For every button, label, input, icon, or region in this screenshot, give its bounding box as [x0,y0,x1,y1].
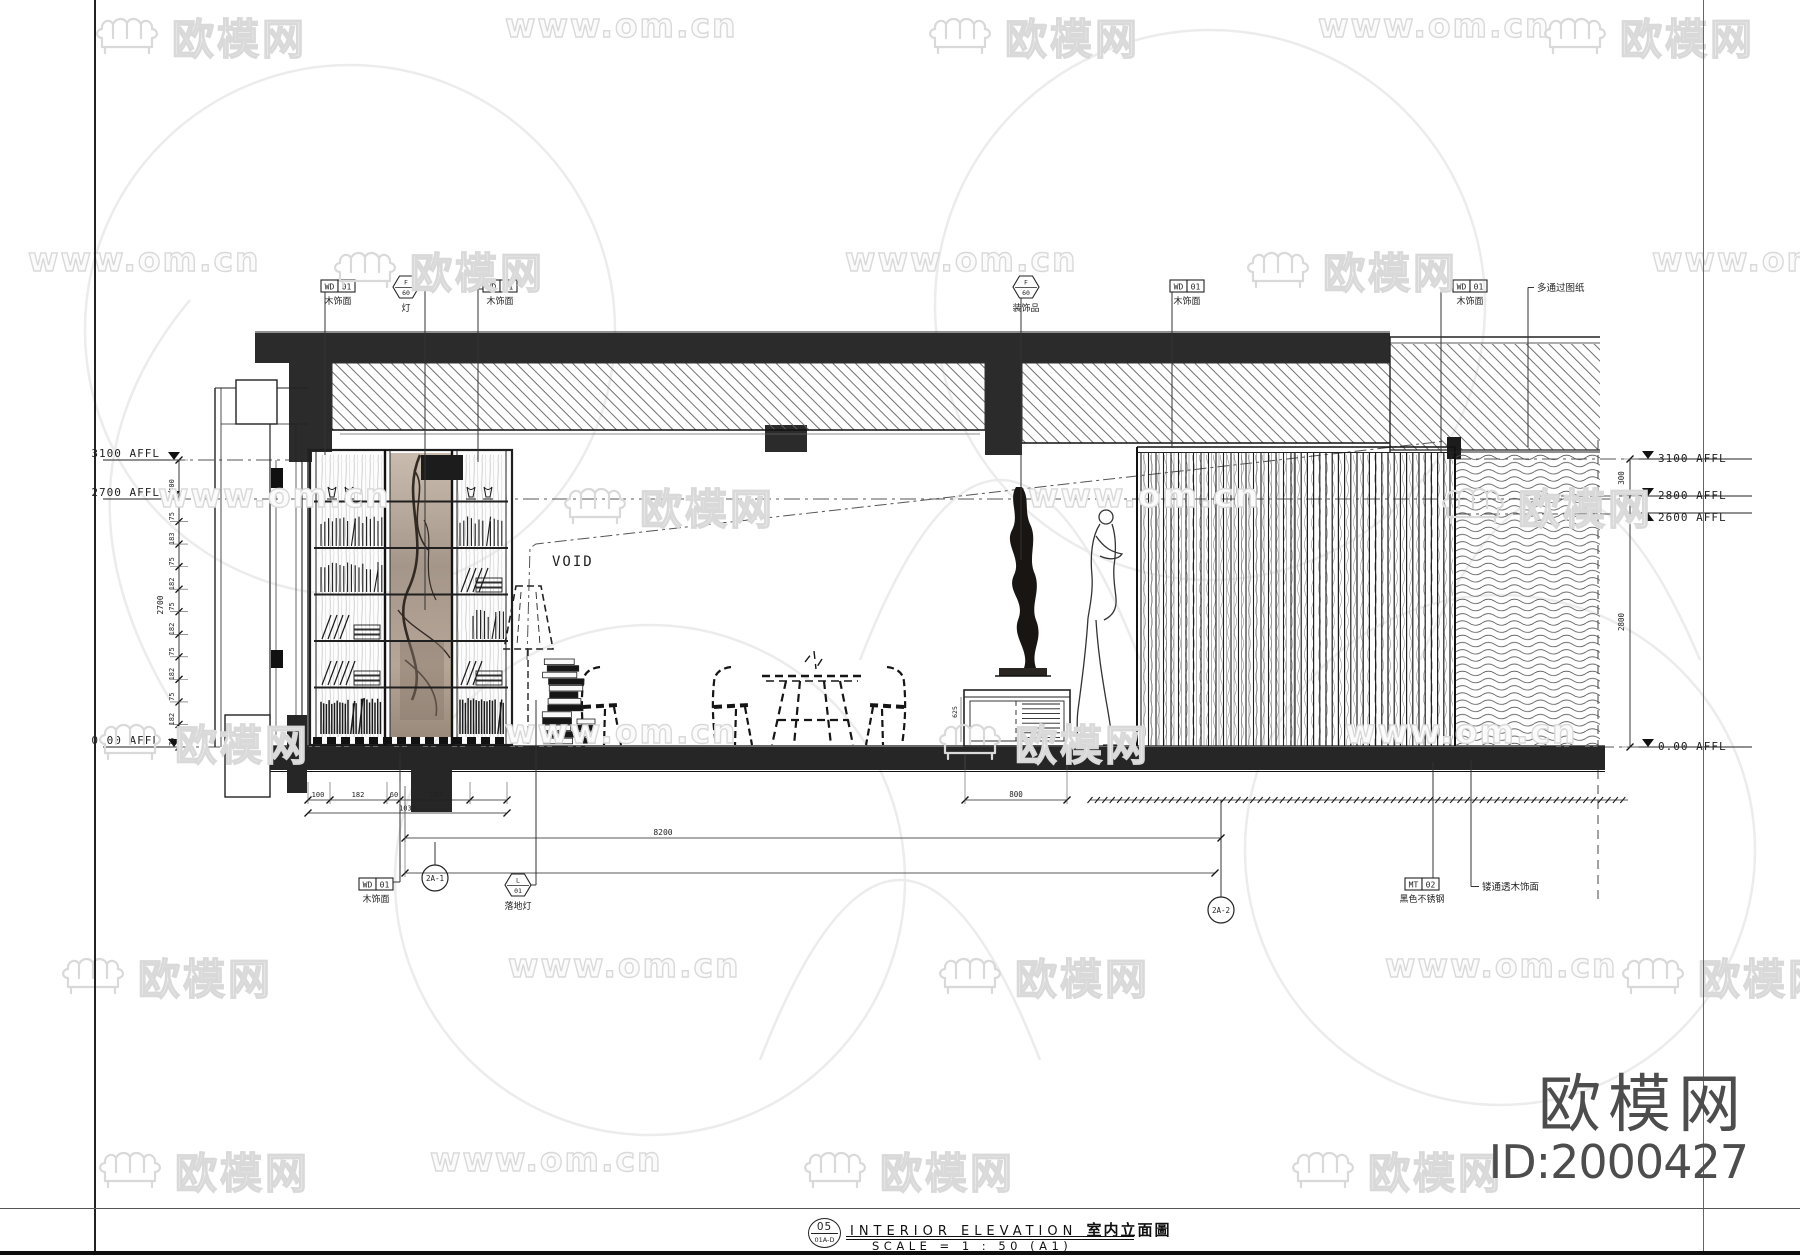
brand-name: 欧模网 [1489,1072,1748,1138]
drawing-number: 05 [809,1221,840,1233]
watermark-arcs [0,0,1800,1260]
drawing-sheet: 3100 AFFL2700 AFFL0.00 AFFL3100 AFFL2800… [0,0,1800,1260]
bubble-divider [811,1233,838,1234]
brand-id: ID:2000427 [1489,1138,1748,1186]
sheet-border-left [94,0,96,1251]
titleblock-rule-top [0,1208,1800,1209]
title-underline-1 [846,1236,1134,1237]
brand-plate: 欧模网 ID:2000427 [1489,1072,1748,1186]
sheet-number: 01A-D [809,1236,840,1244]
sheet-border-right [1703,0,1704,1251]
detail-number-bubble: 05 01A-D [808,1218,841,1248]
titleblock-rule-bottom [0,1251,1800,1255]
